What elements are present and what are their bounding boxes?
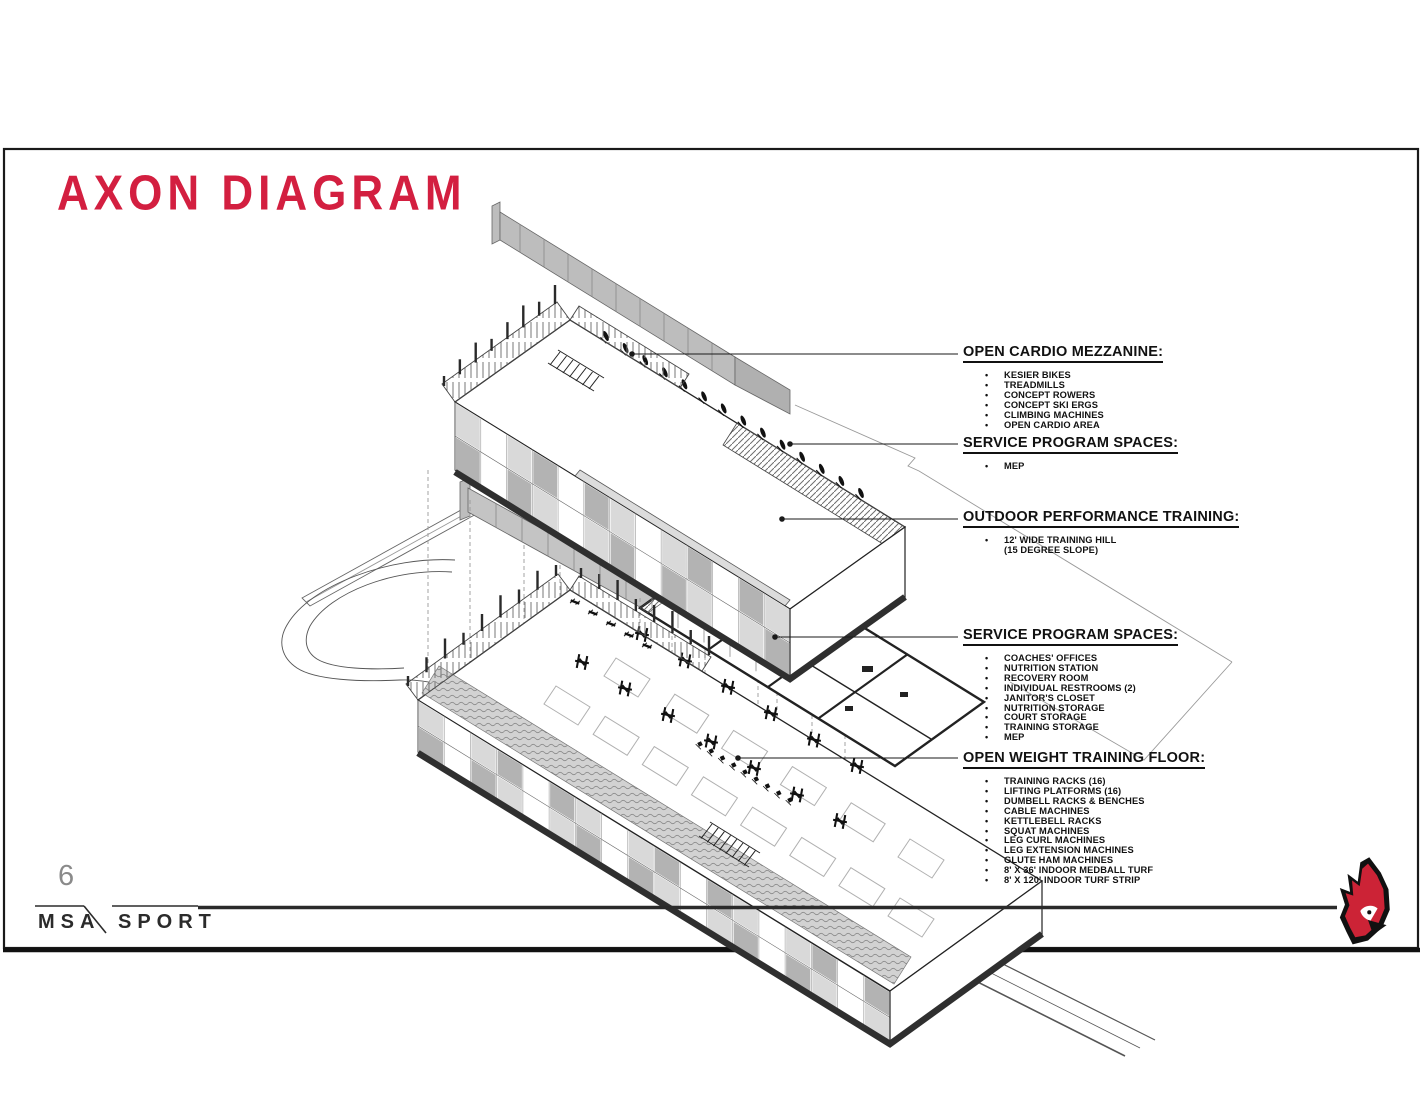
axon-diagram-drawing [0,0,1423,1100]
